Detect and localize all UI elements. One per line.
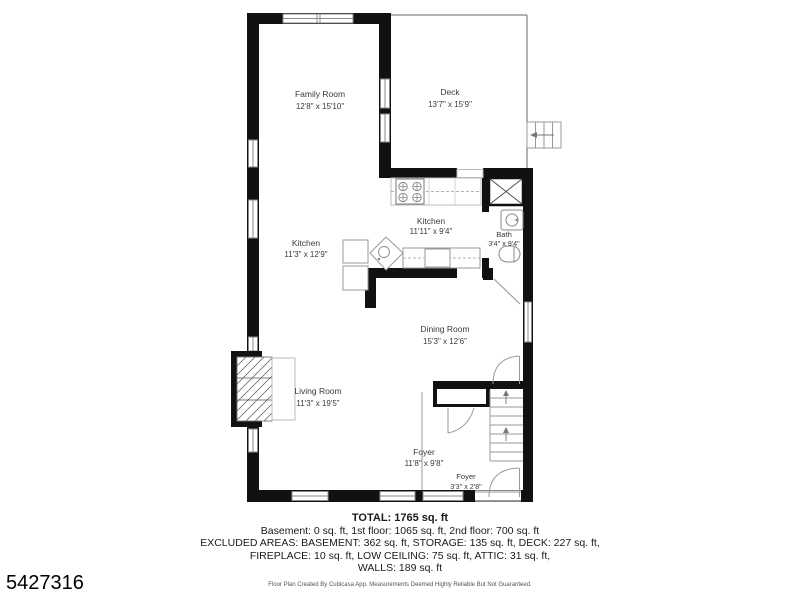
total-area-line: TOTAL: 1765 sq. ft [0, 512, 800, 524]
foyer-main-dims: 11'8" x 9'8" [405, 459, 444, 468]
bath-door-leaf [494, 279, 520, 304]
kitchen-island [343, 237, 480, 290]
deck-label: Deck [440, 87, 460, 97]
excluded-areas-line-2: FIREPLACE: 10 sq. ft, LOW CEILING: 75 sq… [0, 550, 800, 562]
family-room-dims: 12'8" x 15'10" [296, 102, 344, 111]
window-familyroom-right-2 [381, 114, 390, 142]
excluded-areas-line-3: WALLS: 189 sq. ft [0, 562, 800, 574]
wall-kitchen-top [379, 168, 457, 178]
window-left-4 [249, 429, 258, 452]
window-bottom-1 [292, 492, 328, 501]
plan-id: 5427316 [6, 572, 84, 595]
bath-label: Bath [496, 230, 512, 239]
entry-door [475, 468, 521, 502]
toilet-icon [499, 246, 520, 262]
window-left-3 [249, 337, 258, 351]
deck-door-threshold [457, 170, 483, 178]
floor-plan-drawing: Family Room 12'8" x 15'10" Deck 13'7" x … [0, 0, 800, 600]
deck-dims: 13'7" x 15'9" [428, 100, 472, 109]
window-left-1 [249, 140, 258, 167]
dining-room-dims: 15'3" x 12'6" [423, 337, 467, 346]
deck-stairs-icon [527, 122, 561, 148]
island-sink-counter [370, 237, 403, 270]
living-room-label: Living Room [294, 386, 341, 396]
storage-closet-icon [489, 178, 523, 205]
foyer-entry-dims: 3'3" x 2'8" [450, 482, 482, 491]
fireplace-icon [231, 351, 295, 427]
dishwasher-icon [425, 249, 450, 267]
window-top-double [283, 14, 353, 23]
excluded-areas-line-1: EXCLUDED AREAS: BASEMENT: 362 sq. ft, ST… [0, 537, 800, 549]
window-bottom-3 [423, 492, 463, 501]
window-left-2 [249, 200, 258, 238]
family-room-label: Family Room [295, 89, 345, 99]
window-bottom-2 [380, 492, 415, 501]
room-labels: Family Room 12'8" x 15'10" Deck 13'7" x … [284, 87, 520, 491]
living-room-dims: 11'3" x 19'5" [296, 399, 339, 408]
kitchen-left-label: Kitchen [292, 238, 321, 248]
floor-areas-line: Basement: 0 sq. ft, 1st floor: 1065 sq. … [0, 525, 800, 537]
foyer-entry-label: Foyer [456, 472, 476, 481]
bath-sink-icon [501, 210, 523, 230]
kitchen-left-dims: 11'3" x 12'9" [284, 250, 327, 259]
closet-door-arc [448, 408, 474, 433]
area-summary: TOTAL: 1765 sq. ft Basement: 0 sq. ft, 1… [0, 512, 800, 574]
window-dining-right [525, 302, 532, 342]
wall-kitchen-bottom [376, 268, 457, 278]
stove-icon [396, 179, 424, 204]
dining-door-arc [493, 356, 520, 384]
disclaimer-text: Floor Plan Created By Cubicasa App. Meas… [0, 582, 800, 588]
wall-stairhall-top [433, 381, 533, 389]
foyer-main-label: Foyer [413, 447, 435, 457]
hearth [272, 358, 295, 420]
staircase [490, 390, 523, 461]
bath-dims: 3'4" x 9'4" [488, 239, 520, 248]
window-familyroom-right-1 [381, 79, 390, 108]
dining-room-label: Dining Room [420, 324, 469, 334]
kitchen-right-dims: 11'11" x 9'4" [410, 227, 453, 236]
kitchen-right-label: Kitchen [417, 216, 446, 226]
floor-plan-page: Family Room 12'8" x 15'10" Deck 13'7" x … [0, 0, 800, 600]
wall-bath-bottom-corner [483, 268, 493, 280]
